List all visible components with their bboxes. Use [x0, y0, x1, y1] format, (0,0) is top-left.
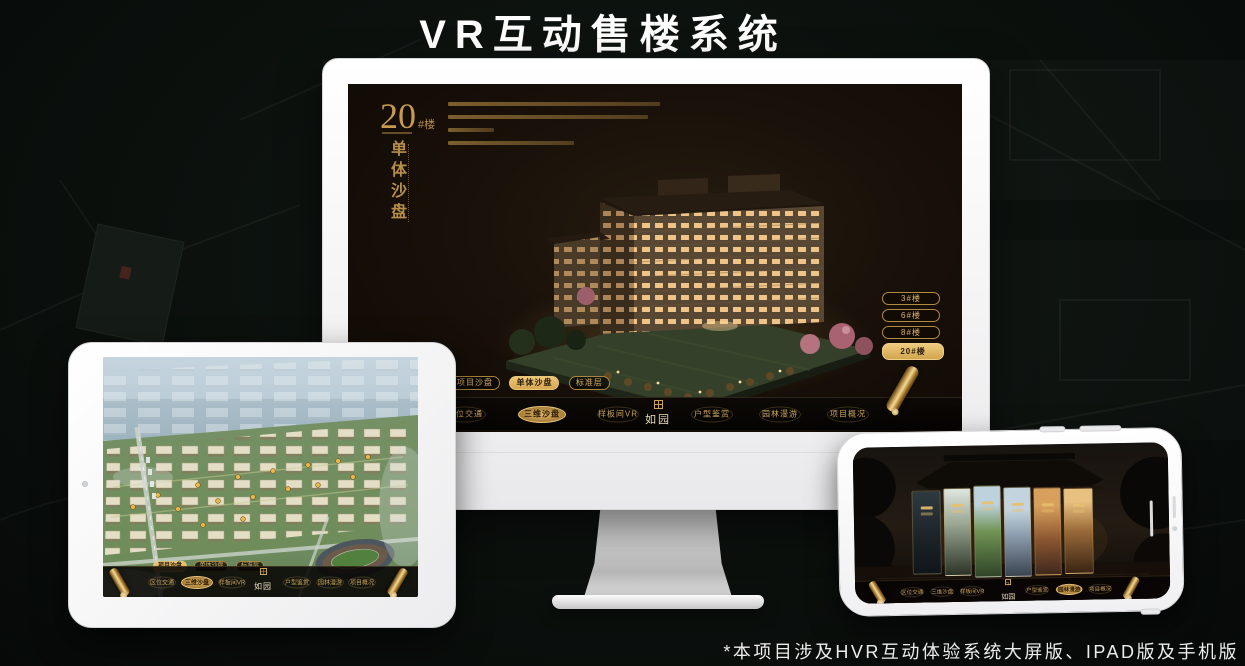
- description-text-line: [448, 102, 660, 106]
- panorama-card[interactable]: [1063, 488, 1093, 574]
- nav-item-3d-sandbox[interactable]: 三维沙盘: [524, 409, 560, 420]
- home-indicator[interactable]: [1150, 501, 1154, 537]
- panorama-card[interactable]: [973, 485, 1002, 577]
- camera-icon: [1172, 526, 1177, 531]
- ipad-bottom-navbar: 区位交通 三维沙盘 样板间VR 如园 户型鉴赏 园林漫游 项目概况: [103, 566, 418, 597]
- camera-icon: [82, 481, 88, 487]
- nav-item-unit-gallery[interactable]: 户型鉴赏: [694, 409, 730, 420]
- floor-button-3[interactable]: 3#楼: [882, 292, 940, 305]
- tab-single-sandbox[interactable]: 单体沙盘: [509, 376, 559, 390]
- scroll-icon[interactable]: [1127, 576, 1135, 600]
- phone-device: 区位交通 三维沙盘 样板间VR 如园 户型鉴赏 园林漫游 项目概况: [836, 427, 1184, 617]
- floor-button-8[interactable]: 8#楼: [882, 326, 940, 339]
- nav-item-3d-sandbox[interactable]: 三维沙盘: [931, 587, 953, 596]
- description-text-line: [448, 128, 494, 132]
- brand-logo: 如园: [1001, 579, 1015, 604]
- tab-standard-floor[interactable]: 标准层: [569, 376, 610, 390]
- ipad-screen: 项目沙盘 单体沙盘 标准层 区位交通 三维沙盘 样板间VR 如园 户型鉴赏 园林…: [103, 357, 418, 597]
- floor-button-20[interactable]: 20#楼: [882, 343, 944, 360]
- page-title: VR互动售楼系统: [419, 2, 787, 60]
- floor-button-group: 3#楼 6#楼 8#楼 20#楼: [882, 292, 946, 364]
- panorama-card[interactable]: [943, 488, 972, 576]
- nav-item-project-overview[interactable]: 项目概况: [350, 578, 374, 587]
- headline-subtitle-vertical: 单体沙盘: [384, 140, 408, 224]
- nav-item-showroom-vr[interactable]: 样板间VR: [960, 586, 984, 595]
- seal-icon: [654, 400, 663, 409]
- building-number-suffix: #楼: [418, 119, 435, 131]
- nav-item-3d-sandbox[interactable]: 三维沙盘: [185, 578, 209, 587]
- nav-item-unit-gallery[interactable]: 户型鉴赏: [1026, 585, 1048, 594]
- speaker-slit: [1173, 496, 1176, 518]
- tab-project-sandbox[interactable]: 项目沙盘: [450, 376, 500, 390]
- seal-icon: [1005, 579, 1011, 585]
- poster-canvas: VR互动售楼系统 20#楼 单体沙盘: [0, 0, 1245, 666]
- power-button: [1141, 608, 1161, 614]
- panorama-card[interactable]: [911, 490, 941, 574]
- monitor-stand-neck: [584, 509, 732, 597]
- nav-item-location-traffic[interactable]: 区位交通: [901, 587, 923, 596]
- phone-bottom-navbar: 区位交通 三维沙盘 样板间VR 如园 户型鉴赏 园林漫游 项目概况: [855, 575, 1170, 603]
- nav-item-unit-gallery[interactable]: 户型鉴赏: [285, 578, 309, 587]
- nav-item-showroom-vr[interactable]: 样板间VR: [598, 409, 638, 420]
- nav-item-project-overview[interactable]: 项目概况: [830, 409, 866, 420]
- nav-item-garden-tour[interactable]: 园林漫游: [762, 409, 798, 420]
- building-headline: 20#楼: [380, 98, 435, 134]
- panorama-card[interactable]: [1033, 487, 1062, 575]
- phone-screen: 区位交通 三维沙盘 样板间VR 如园 户型鉴赏 园林漫游 项目概况: [853, 442, 1171, 603]
- nav-item-project-overview[interactable]: 项目概况: [1089, 584, 1111, 593]
- monitor-stand-base: [552, 595, 764, 609]
- nav-item-location-traffic[interactable]: 区位交通: [150, 578, 174, 587]
- panorama-card[interactable]: [1003, 487, 1032, 577]
- volume-button: [1039, 426, 1065, 432]
- volume-button: [1079, 425, 1121, 432]
- floor-button-6[interactable]: 6#楼: [882, 309, 940, 322]
- headline-english-caption: [408, 144, 409, 222]
- brand-logo: 如园: [645, 400, 671, 428]
- description-text-line: [448, 115, 648, 119]
- headline-underline: [382, 132, 412, 134]
- footnote-text: *本项目涉及HVR互动体验系统大屏版、IPAD版及手机版: [723, 638, 1239, 664]
- nav-item-garden-tour[interactable]: 园林漫游: [318, 578, 342, 587]
- scroll-icon[interactable]: [873, 580, 881, 603]
- scroll-icon[interactable]: [896, 364, 909, 414]
- nav-item-garden-tour[interactable]: 园林漫游: [1058, 585, 1080, 594]
- seal-icon: [260, 568, 267, 575]
- scroll-icon[interactable]: [393, 567, 402, 597]
- brand-logo: 如园: [254, 568, 272, 594]
- building-number: 20: [380, 96, 416, 136]
- nav-item-showroom-vr[interactable]: 样板间VR: [219, 578, 245, 587]
- sandbox-mode-tabs: 项目沙盘 单体沙盘 标准层: [450, 372, 615, 390]
- scroll-icon[interactable]: [115, 567, 124, 597]
